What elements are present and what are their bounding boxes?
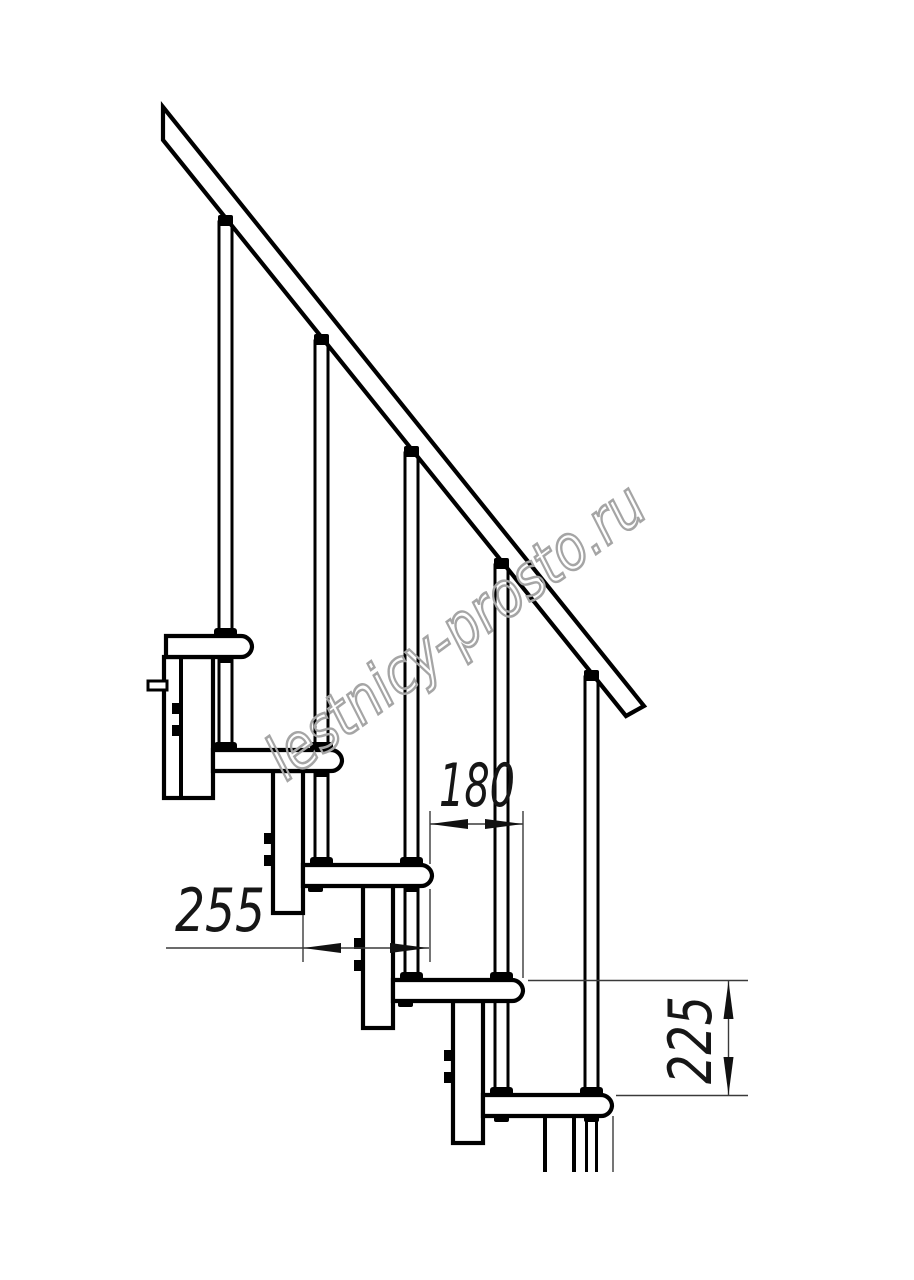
dim180-label: 180 bbox=[439, 751, 515, 821]
rail-connector-b5 bbox=[584, 670, 599, 681]
column-3-bolt-tab-b bbox=[354, 960, 363, 971]
staircase-side-elevation-drawing: 180 255 225 lestnicy-prosto.ru bbox=[0, 0, 914, 1280]
nut-under-tread3-b3 bbox=[404, 885, 419, 892]
mount-tread4-b3 bbox=[400, 972, 423, 981]
nut-under-tread5-b4 bbox=[494, 1115, 509, 1122]
mount-tread2-b1 bbox=[214, 742, 237, 751]
dim255-label: 255 bbox=[175, 876, 265, 946]
column-module-1 bbox=[164, 657, 213, 798]
mount-tread3-b2 bbox=[310, 857, 333, 866]
staircase-technical-drawing-page: 180 255 225 lestnicy-prosto.ru bbox=[0, 0, 914, 1280]
rail-connector-b1 bbox=[218, 215, 233, 226]
nut-under-tread1-b1 bbox=[218, 656, 233, 663]
baluster-5-upper bbox=[585, 677, 598, 1095]
mount-tread3-b3 bbox=[400, 857, 423, 866]
baluster-2-lower bbox=[315, 771, 328, 865]
column-4-bolt-tab-b bbox=[444, 1072, 453, 1083]
tread-5 bbox=[483, 1095, 612, 1116]
mount-tread5-b4 bbox=[490, 1087, 513, 1096]
mount-tread1-b1 bbox=[214, 628, 237, 637]
column-1-bolt-tab-a bbox=[172, 703, 181, 714]
nut-under-tread5-b5 bbox=[584, 1115, 599, 1122]
column-1-bolt-tab-b bbox=[172, 725, 181, 736]
nut-under-tread3-b2 bbox=[308, 885, 323, 892]
column-2-bolt-tab-a bbox=[264, 833, 273, 844]
nut-under-tread4-b3 bbox=[398, 1000, 413, 1007]
baluster-1-lower bbox=[219, 657, 232, 750]
rail-connector-b2 bbox=[314, 334, 329, 345]
column-module-4 bbox=[453, 1001, 483, 1143]
baluster-1-upper bbox=[219, 222, 232, 636]
cut-bolt-bracket bbox=[148, 681, 167, 690]
column-4-bolt-tab-a bbox=[444, 1050, 453, 1061]
tread-3 bbox=[303, 865, 432, 886]
baluster-3-lower bbox=[405, 886, 418, 980]
column-module-3 bbox=[363, 886, 393, 1028]
dim225-label: 225 bbox=[656, 996, 726, 1084]
tread-4 bbox=[393, 980, 523, 1001]
column-2-bolt-tab-b bbox=[264, 855, 273, 866]
rail-connector-b3 bbox=[404, 446, 419, 457]
baluster-4-lower bbox=[495, 1001, 508, 1095]
dimension-225: 225 bbox=[528, 981, 748, 1173]
dim255-arrow-left bbox=[303, 943, 341, 953]
mount-tread4-b4 bbox=[490, 972, 513, 981]
column-module-2 bbox=[273, 771, 303, 913]
mount-tread5-b5 bbox=[580, 1087, 603, 1096]
tread-1 bbox=[166, 636, 252, 657]
